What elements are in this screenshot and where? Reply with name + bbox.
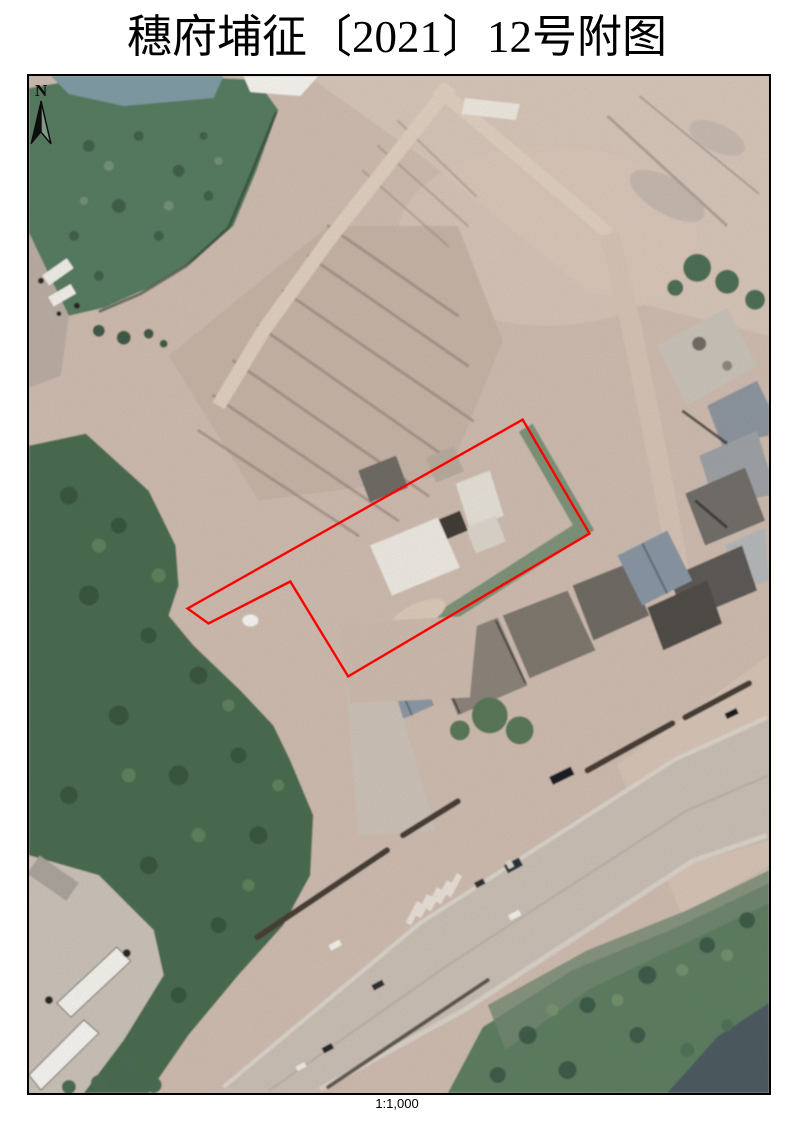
scale-label: 1:1,000 [0, 1096, 794, 1111]
page-title: 穗府埔征〔2021〕12号附图 [0, 8, 794, 66]
photo-grain [29, 76, 769, 1093]
north-label: N [35, 81, 48, 100]
satellite-map: N [27, 74, 771, 1095]
